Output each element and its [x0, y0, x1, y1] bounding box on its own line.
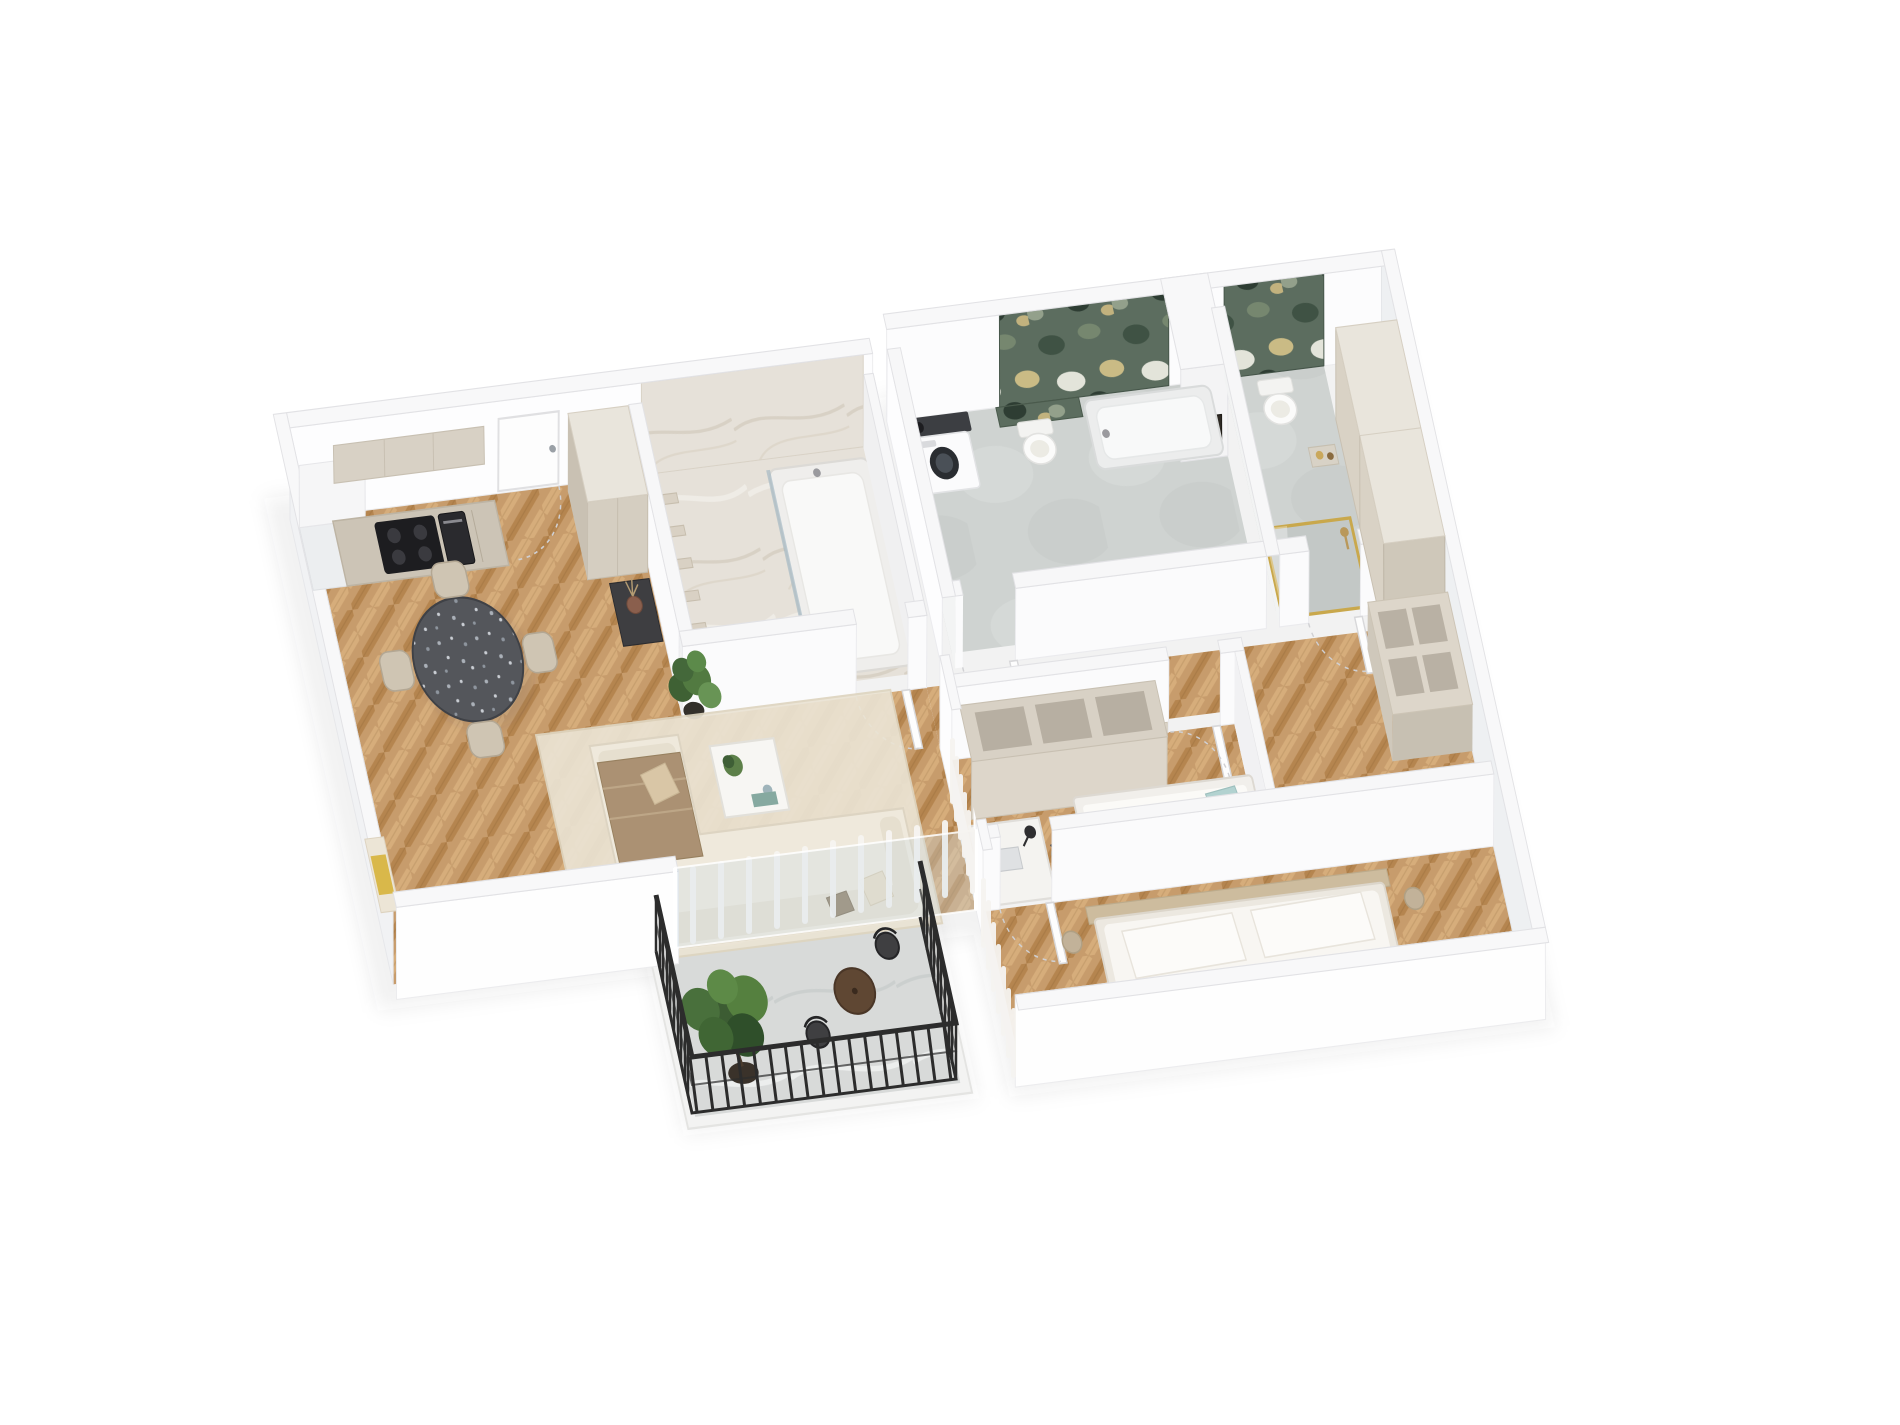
- wc-shelf-toiletries: [1308, 444, 1339, 467]
- floorplan-stage: 3D isometric floor plan render of a two-…: [0, 0, 1900, 1425]
- apartment-scene: [241, 249, 1567, 1173]
- floorplan-render: [0, 0, 1900, 1425]
- bath2-bathtub: [1083, 385, 1224, 470]
